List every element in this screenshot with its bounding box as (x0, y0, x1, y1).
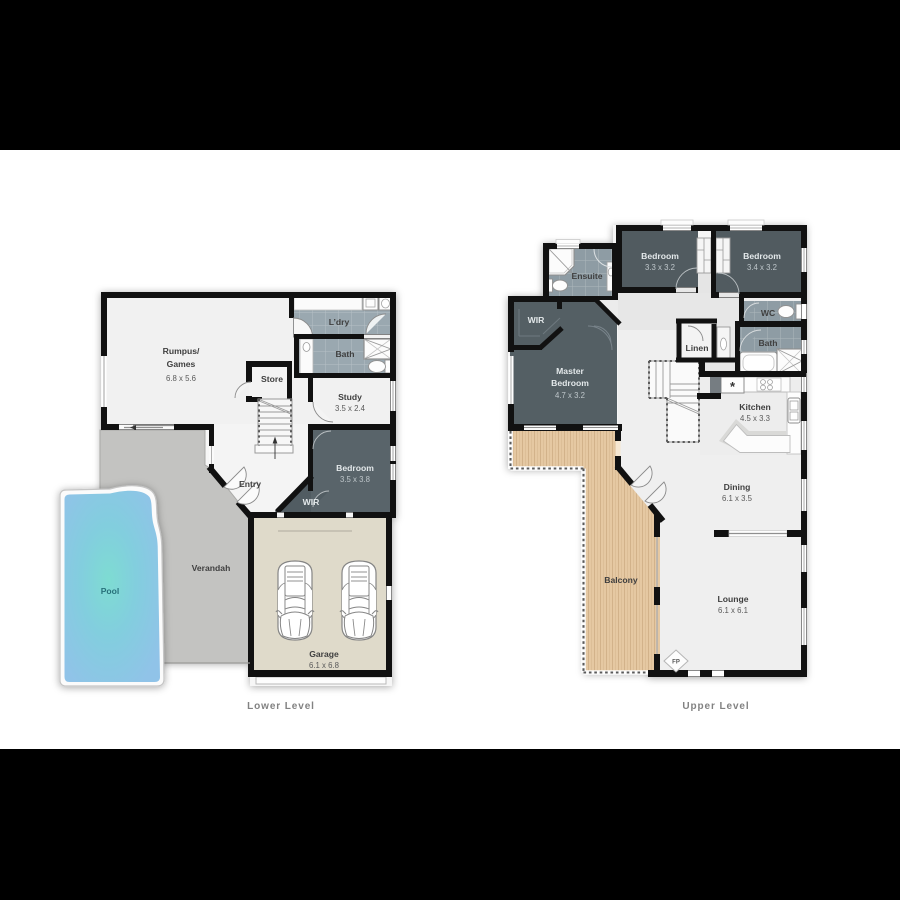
svg-text:Balcony: Balcony (604, 575, 638, 585)
svg-text:4.5 x 3.3: 4.5 x 3.3 (740, 414, 770, 423)
svg-text:Bedroom: Bedroom (551, 378, 589, 388)
svg-text:6.1 x 6.1: 6.1 x 6.1 (718, 606, 748, 615)
svg-text:FP: FP (672, 660, 680, 666)
svg-text:WC: WC (761, 308, 775, 318)
svg-text:WIR: WIR (528, 315, 545, 325)
svg-text:3.5 x 2.4: 3.5 x 2.4 (335, 404, 366, 413)
svg-text:L’dry: L’dry (329, 317, 350, 327)
svg-text:3.5 x 3.8: 3.5 x 3.8 (340, 475, 370, 484)
svg-text:Linen: Linen (686, 343, 709, 353)
svg-text:Bedroom: Bedroom (336, 463, 374, 473)
svg-text:Store: Store (261, 374, 283, 384)
svg-text:3.3 x 3.2: 3.3 x 3.2 (645, 263, 675, 272)
svg-text:Bedroom: Bedroom (641, 251, 679, 261)
svg-text:Bath: Bath (758, 338, 777, 348)
svg-text:Kitchen: Kitchen (739, 402, 771, 412)
svg-text:Master: Master (556, 366, 584, 376)
svg-text:Upper Level: Upper Level (682, 701, 749, 712)
svg-text:WIR: WIR (303, 497, 320, 507)
svg-text:Dining: Dining (724, 482, 751, 492)
svg-text:4.7 x 3.2: 4.7 x 3.2 (555, 391, 585, 400)
svg-text:6.8 x 5.6: 6.8 x 5.6 (166, 374, 196, 383)
svg-text:Lower Level: Lower Level (247, 701, 315, 712)
svg-text:Pool: Pool (101, 586, 120, 596)
svg-text:6.1 x 3.5: 6.1 x 3.5 (722, 494, 753, 503)
svg-text:Bath: Bath (335, 349, 354, 359)
svg-text:Rumpus/: Rumpus/ (163, 346, 200, 356)
svg-text:Verandah: Verandah (192, 563, 231, 573)
svg-text:Garage: Garage (309, 649, 339, 659)
svg-text:Ensuite: Ensuite (571, 271, 602, 281)
svg-text:Games: Games (167, 359, 196, 369)
svg-text:Lounge: Lounge (717, 594, 748, 604)
svg-text:Study: Study (338, 392, 362, 402)
svg-text:3.4 x 3.2: 3.4 x 3.2 (747, 263, 777, 272)
svg-text:Bedroom: Bedroom (743, 251, 781, 261)
svg-text:Entry: Entry (239, 479, 261, 489)
svg-text:6.1 x 6.8: 6.1 x 6.8 (309, 661, 339, 670)
